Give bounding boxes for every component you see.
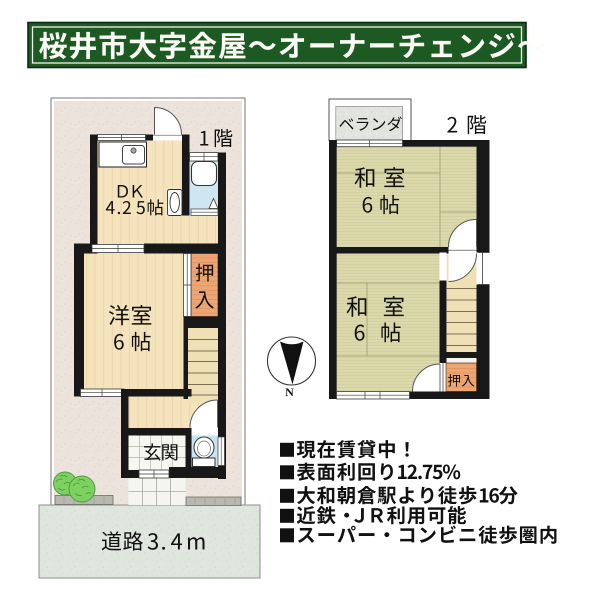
svg-text:N: N [285, 385, 294, 399]
